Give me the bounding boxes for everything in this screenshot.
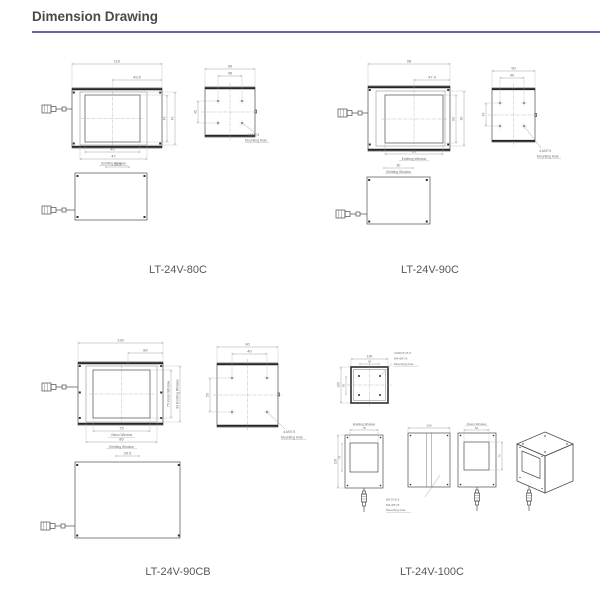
dim-window-inner: 40 <box>110 147 115 152</box>
dim-back-width: 90 <box>228 64 233 69</box>
dim-hole-pitch-y: 50 <box>206 393 210 397</box>
cable-connector <box>338 109 368 117</box>
dim-hole-pitch: 40 <box>510 73 515 78</box>
front-view: 110 49.5 40 45 40 47 Emitting Window <box>42 59 177 166</box>
front-view: Emitting Window 75 100 75 <box>334 422 383 512</box>
dim-thickness: 29.5 <box>114 162 123 167</box>
dim-width: 98 <box>407 59 412 64</box>
mounting-note-label: Mounting Hole <box>281 436 303 440</box>
cable-connector <box>527 487 532 512</box>
dim-back-width: 90 <box>511 66 516 71</box>
product-label-lt-24v-80c: LT-24V-80C <box>108 264 248 276</box>
dim-window: 80 <box>412 149 417 154</box>
drawing-lt-24v-90c: 98 47.4 80 90 80 Emitting Window <box>335 55 565 240</box>
mounting-note-spec: 4-M4▽4 <box>247 133 259 137</box>
drawing-lt-24v-80c: 110 49.5 40 45 40 47 Emitting Window <box>40 55 270 240</box>
dim-top-pitch-y: 50 <box>342 384 346 388</box>
cable-connector <box>42 206 75 214</box>
side-view: 29.5 <box>41 451 180 539</box>
mounting-note-label: Mounting hole <box>386 508 406 512</box>
back-view: 90 40 40 4-M4▽4 Mounting Hole <box>482 66 562 159</box>
dim-hole-pitch-y: 40 <box>482 113 486 117</box>
dim-offset: 47.4 <box>428 75 437 80</box>
dim-hole-pitch: 45 <box>228 71 233 76</box>
dim-width: 130 <box>117 338 124 343</box>
dim-top-side: 100 <box>337 382 341 388</box>
dim-width: 110 <box>114 59 121 64</box>
dim-vision: 75 <box>119 426 124 431</box>
product-label-lt-24v-90c: LT-24V-90C <box>360 264 500 276</box>
dim-right-inner: 40 <box>163 117 167 121</box>
isometric-view <box>517 432 573 511</box>
dimension-drawing-page: Dimension Drawing <box>0 0 600 600</box>
dim-right-outer: 45 <box>171 117 175 121</box>
back-view: 90 40 50 4-M4▽4 Mounting Hole <box>206 342 307 440</box>
mounting-note-label: Mounting hole <box>394 362 414 366</box>
top-view: 100 40 100 50 4×Ø3.5▽6.5 M4-6H▽5 Mountin… <box>337 351 419 407</box>
mounting-note-spec2: M4-6H▽5 <box>386 503 400 507</box>
dim-thickness: 29.5 <box>124 451 133 456</box>
side-view: 29.5 <box>42 162 147 221</box>
mounting-note-spec: 4-M4▽4 <box>283 430 295 434</box>
dim-right-vision: 75 Vision Window <box>167 380 171 407</box>
dim-emitting: 80 <box>119 437 124 442</box>
side-window-label: Emitting Window <box>386 170 411 174</box>
dim-window: 54 <box>475 426 479 430</box>
product-label-lt-24v-100c: LT-24V-100C <box>362 566 502 578</box>
dim-back-width: 90 <box>245 342 250 347</box>
drawing-lt-24v-100c: 100 40 100 50 4×Ø3.5▽6.5 M4-6H▽5 Mountin… <box>328 335 583 565</box>
mounting-holes <box>497 100 526 128</box>
dim-window: 75 <box>362 426 366 430</box>
back-view: 100 Ø3.5▽6.5 M4-6H▽5 Mounting hole <box>386 424 450 513</box>
cable-connector <box>41 522 75 530</box>
mounting-note-label: Mounting Hole <box>245 139 267 143</box>
dim-right: 75 <box>498 454 502 458</box>
emitting-window-label: Emitting Window <box>402 157 427 161</box>
side-view: 80 Emitting Window <box>336 164 430 225</box>
cable-connector <box>42 383 78 391</box>
dim-window-outer: 47 <box>111 154 116 159</box>
dim-top-pitch: 40 <box>368 360 372 364</box>
dim-top: 80 <box>397 164 401 168</box>
front-view: 98 47.4 80 90 80 Emitting Window <box>338 59 466 161</box>
cable-connector <box>336 210 367 218</box>
dim-back-width: 100 <box>426 424 431 428</box>
mounting-note-spec1: Ø3.5▽6.5 <box>386 498 400 502</box>
product-label-lt-24v-90cb: LT-24V-90CB <box>108 566 248 578</box>
dim-right-inner: 80 <box>452 117 456 121</box>
accent-divider <box>32 31 600 33</box>
dim-right-outer: 90 <box>460 117 464 121</box>
dim-right-emitting: 90 Emitting Window <box>176 379 180 409</box>
dim-window-height: 75 <box>338 456 342 460</box>
dim-hole-pitch: 40 <box>247 349 252 354</box>
dim-offset: 80 <box>143 348 148 353</box>
emitting-window-label: Emitting Window <box>109 445 134 449</box>
front-view: 130 80 75 Vision Window 90 Emitting Wind… <box>42 338 182 449</box>
dim-hole-pitch-y: 45 <box>194 110 198 114</box>
cable-connector <box>475 487 480 511</box>
mounting-note-spec2: M4-6H▽5 <box>394 357 408 361</box>
mounting-note-spec1: 4×Ø3.5▽6.5 <box>394 351 411 355</box>
cable-connector <box>362 488 367 512</box>
side-view: Vision Window 54 75 <box>458 422 504 511</box>
cable-connector <box>42 105 72 113</box>
mounting-note-spec: 4-M4▽4 <box>539 149 551 153</box>
mounting-note-label: Mounting Hole <box>537 155 559 159</box>
dim-offset: 49.5 <box>133 75 142 80</box>
drawing-lt-24v-90cb: 130 80 75 Vision Window 90 Emitting Wind… <box>40 330 320 565</box>
page-title: Dimension Drawing <box>32 9 158 24</box>
dim-top-width: 100 <box>367 355 373 359</box>
back-view: 90 45 45 4-M4▽4 Mounting Hole <box>194 64 270 143</box>
